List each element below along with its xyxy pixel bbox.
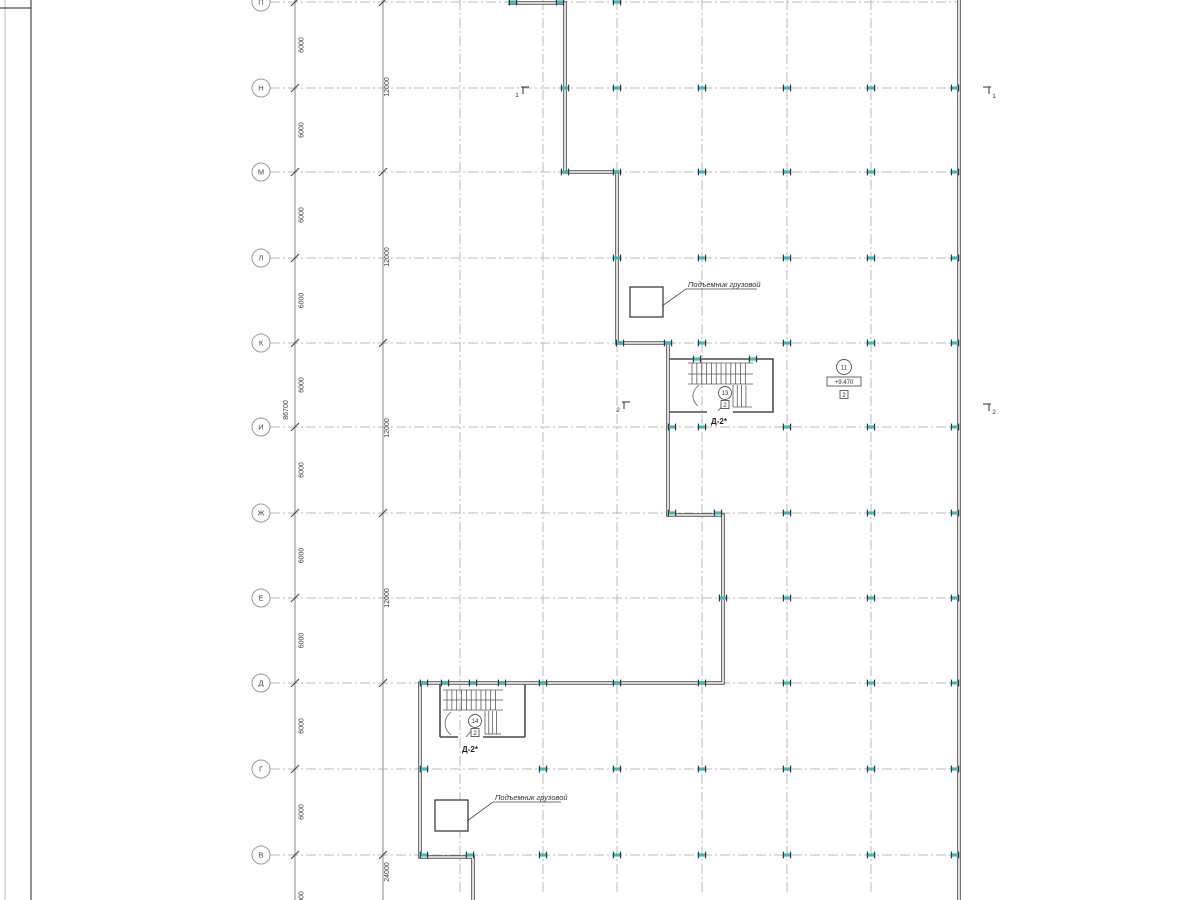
column-mark [867, 853, 875, 856]
axis-letter: В [258, 851, 263, 860]
drawing-sheet: ПНМЛКИЖЕДГВ 6000600060006000600060006000… [0, 0, 1200, 900]
column-mark [539, 681, 547, 684]
column-mark [613, 767, 621, 770]
column-mark [698, 767, 706, 770]
column-mark [783, 425, 791, 428]
stair-label: Д-2* [711, 417, 728, 426]
column-mark [783, 596, 791, 599]
section-mark-1-right: 1 [983, 87, 996, 100]
axis-letter: П [258, 0, 263, 7]
axis-letter: И [258, 423, 263, 432]
axis-letter: Н [258, 84, 263, 93]
column-mark [951, 86, 959, 89]
column-mark [951, 853, 959, 856]
column-mark [867, 511, 875, 514]
column-mark [867, 341, 875, 344]
column-mark [556, 0, 564, 3]
column-grid-lines [460, 0, 871, 893]
dim-text-6000: 6000 [299, 122, 306, 138]
dim-text-12000: 12000 [384, 77, 391, 97]
dim-text-6000: 6000 [299, 718, 306, 734]
column-mark [867, 681, 875, 684]
column-mark [714, 511, 722, 514]
dimension-lines: 6000600060006000600060006000600060006000… [291, 0, 391, 900]
floor-plan-canvas: ПНМЛКИЖЕДГВ 6000600060006000600060006000… [0, 0, 1200, 900]
column-mark [783, 256, 791, 259]
dim-text-6000: 6000 [299, 804, 306, 820]
section-mark-number: 1 [992, 93, 996, 100]
dim-bottom-24000: 24000 [384, 862, 391, 882]
column-mark [951, 681, 959, 684]
building-perimeter-wall [420, 0, 959, 900]
column-mark [613, 170, 621, 173]
dim-text-6000: 6000 [299, 377, 306, 393]
column-marks [420, 0, 959, 858]
dim-text-6000: 6000 [299, 293, 306, 309]
stair-detail-upper: 13 2 Д-2* [668, 359, 773, 426]
column-mark [698, 425, 706, 428]
stair-handrail-curve [693, 385, 699, 406]
axis-letter: Г [259, 765, 263, 774]
column-mark [668, 511, 676, 514]
column-mark [698, 170, 706, 173]
column-mark [951, 170, 959, 173]
column-mark [867, 596, 875, 599]
section-mark-number: 2 [616, 407, 620, 414]
column-mark [698, 86, 706, 89]
axis-letter: К [259, 339, 264, 348]
section-mark-2-right: 2 [983, 404, 996, 416]
dim-text-12000: 12000 [384, 247, 391, 267]
axis-letter: Ж [258, 509, 265, 518]
stair-room-walls [668, 359, 773, 412]
column-mark [783, 341, 791, 344]
column-mark [698, 681, 706, 684]
stair-handrail-curve [445, 712, 451, 735]
lift-shaft-box [435, 800, 468, 831]
node-number: 11 [841, 365, 848, 371]
dim-text-6000: 6000 [299, 891, 306, 900]
axis-letter: Д [258, 679, 263, 688]
column-mark [561, 86, 569, 89]
column-mark [613, 86, 621, 89]
column-mark [867, 86, 875, 89]
dim-text-6000: 6000 [299, 37, 306, 53]
dim-total-86700: 86700 [283, 400, 290, 420]
column-mark [539, 767, 547, 770]
column-mark [749, 357, 757, 360]
section-mark-1-top: 1 [515, 87, 529, 99]
column-mark [867, 256, 875, 259]
column-mark [420, 767, 428, 770]
row-grid-lines: ПНМЛКИЖЕДГВ [252, 0, 957, 864]
perimeter-wall-outer [420, 3, 723, 900]
column-mark [951, 256, 959, 259]
column-mark [561, 170, 569, 173]
dim-text-6000: 6000 [299, 462, 306, 478]
column-mark [951, 596, 959, 599]
section-mark-number: 1 [515, 92, 519, 99]
section-mark-number: 2 [992, 409, 996, 416]
column-mark [783, 681, 791, 684]
stair-number: 13 [722, 391, 729, 397]
section-mark-glyph [622, 402, 630, 409]
lift-shaft-box [630, 287, 663, 317]
column-mark [951, 425, 959, 428]
column-mark [783, 511, 791, 514]
column-mark [616, 341, 624, 344]
column-mark [783, 86, 791, 89]
column-mark [613, 853, 621, 856]
stair-detail-lower: 14 2 Д-2* [440, 684, 525, 754]
column-mark [867, 767, 875, 770]
stair-room-walls [440, 684, 525, 737]
column-mark [719, 596, 727, 599]
dim-text-6000: 6000 [299, 633, 306, 649]
freight-lift-lower: Подъемник грузовой [435, 793, 568, 831]
column-mark [783, 767, 791, 770]
freight-lift-upper: Подъемник грузовой [630, 280, 761, 317]
perimeter-wall-inner [420, 3, 723, 900]
column-mark [698, 256, 706, 259]
elevation-callout: 11 +9.470 2 [827, 360, 861, 400]
lift-leader-line [662, 289, 757, 306]
axis-letter: Е [258, 594, 263, 603]
column-mark [783, 170, 791, 173]
frame-border [0, 0, 31, 900]
dim-text-6000: 6000 [299, 548, 306, 564]
column-mark [539, 853, 547, 856]
column-mark [664, 341, 672, 344]
column-mark [466, 853, 474, 856]
column-mark [867, 425, 875, 428]
stair-number: 14 [472, 719, 479, 725]
column-mark [420, 853, 428, 856]
section-mark-glyph [983, 87, 991, 94]
column-mark [668, 425, 676, 428]
elevation-value: +9.470 [835, 380, 854, 386]
column-mark [441, 681, 449, 684]
column-mark [469, 681, 477, 684]
column-mark [698, 853, 706, 856]
column-mark [951, 767, 959, 770]
column-mark [698, 341, 706, 344]
stair-label: Д-2* [462, 745, 479, 754]
column-mark [951, 511, 959, 514]
column-mark [613, 256, 621, 259]
section-mark-glyph [983, 404, 991, 411]
dim-text-6000: 6000 [299, 207, 306, 223]
section-mark-2-left: 2 [616, 402, 630, 414]
column-mark [498, 681, 506, 684]
lift-label: Подъемник грузовой [688, 280, 761, 289]
column-mark [509, 0, 517, 3]
lift-leader-line [467, 802, 561, 821]
column-mark [867, 170, 875, 173]
column-mark [951, 341, 959, 344]
column-mark [420, 681, 428, 684]
lift-label: Подъемник грузовой [495, 793, 568, 802]
dim-text-12000: 12000 [384, 418, 391, 438]
stair-flight-hatch [688, 363, 753, 407]
column-mark [693, 357, 701, 360]
column-mark [613, 681, 621, 684]
column-mark [783, 853, 791, 856]
axis-letter: М [258, 168, 264, 177]
dim-text-12000: 12000 [384, 588, 391, 608]
column-mark [613, 0, 621, 3]
axis-letter: Л [259, 254, 264, 263]
